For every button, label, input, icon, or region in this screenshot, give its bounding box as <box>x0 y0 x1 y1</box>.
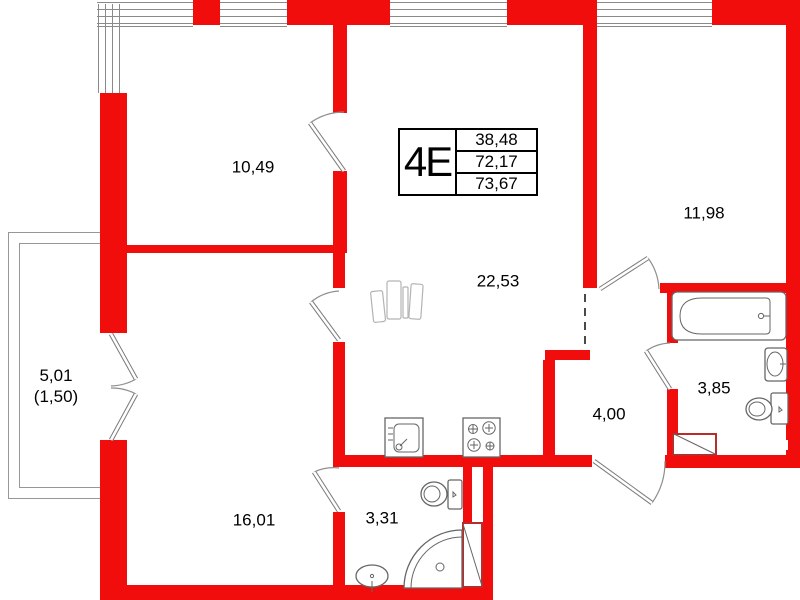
toilet-icon <box>421 480 462 509</box>
door-bathroom-small <box>314 468 339 511</box>
wall-left-lower <box>100 440 127 600</box>
wall-331-right <box>463 467 472 525</box>
balcony-area: 5,01 <box>34 365 78 386</box>
wall-22-11 <box>583 25 597 288</box>
window-top-right <box>597 2 712 27</box>
room-area-label: 10,49 <box>232 157 275 178</box>
shower-icon <box>404 530 462 588</box>
room-area-label: 4,00 <box>592 404 625 425</box>
window-top-center <box>390 2 507 27</box>
sink-icon <box>765 348 787 381</box>
kitchen-sink-icon <box>385 418 423 457</box>
vent-shaft-icon <box>672 433 717 456</box>
wall-h-10-16 <box>127 245 335 253</box>
wardrobe-icon <box>370 281 423 323</box>
wall-band-right <box>665 455 800 468</box>
bathtub-icon <box>672 292 786 340</box>
window-corner-left <box>98 4 125 93</box>
entry-door <box>594 461 665 503</box>
toilet-icon <box>746 393 788 424</box>
unit-living-area: 38,48 <box>457 130 536 152</box>
wall-v-center <box>333 171 347 253</box>
room-area-label: 3,31 <box>365 508 398 529</box>
wall-left-upper <box>100 93 127 333</box>
unit-total-area: 73,67 <box>457 174 536 194</box>
room-area-label: 3,85 <box>697 378 730 399</box>
door-balcony <box>111 334 136 440</box>
wall-v-center <box>333 342 345 455</box>
window-top-mid-left <box>220 2 287 27</box>
stove-icon <box>463 418 500 457</box>
room-area-label: 22,53 <box>477 271 520 292</box>
wall-v-center <box>333 512 345 592</box>
wall-outer-strip <box>483 467 493 593</box>
balcony-area-coefficient: (1,50) <box>34 386 78 407</box>
door-bedroom-right <box>600 258 659 289</box>
unit-area: 72,17 <box>457 152 536 174</box>
balcony-area-label: 5,01 (1,50) <box>34 365 78 407</box>
room-area-label: 11,98 <box>683 203 724 224</box>
wall-hall-left <box>543 360 555 457</box>
wall-right <box>786 0 800 468</box>
room-area-label: 16,01 <box>233 510 276 531</box>
door-bedroom-top-left <box>310 112 344 171</box>
wall-bath-left <box>667 292 678 343</box>
wall-pier <box>193 0 220 25</box>
vent-shaft-icon <box>462 522 483 588</box>
wall-pier <box>507 0 597 25</box>
unit-type-label: 4E <box>400 130 457 194</box>
wall-v-center <box>333 25 347 113</box>
door-room-bottom-left <box>311 291 339 340</box>
door-bathroom-large <box>646 343 670 389</box>
wall-v-center <box>333 253 345 288</box>
wall-pier <box>287 0 390 25</box>
unit-info-card: 4E 38,48 72,17 73,67 <box>398 128 538 196</box>
wall-bottom <box>100 585 493 600</box>
wall-niche <box>717 440 788 450</box>
wall-11-bottom <box>660 283 790 293</box>
floor-plan: 10,49 22,53 11,98 16,01 3,31 4,00 3,85 5… <box>0 0 800 600</box>
wall-hall-top <box>545 350 590 360</box>
